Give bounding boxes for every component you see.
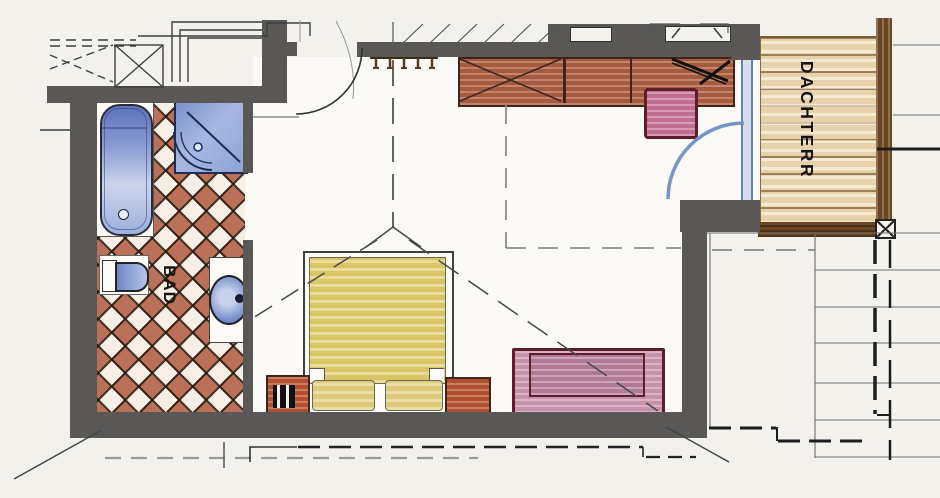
wall-bath-partition-upper xyxy=(243,103,253,173)
terrace-corner-post xyxy=(875,219,896,239)
floor-plan: BAD DACHTERR xyxy=(0,0,940,498)
exterior-dashed-boundary xyxy=(709,240,890,460)
nightstand-right xyxy=(445,377,491,417)
wall-niche-2 xyxy=(665,26,731,42)
wall-niche-1 xyxy=(570,27,612,42)
wardrobe-divider-1 xyxy=(563,57,566,103)
pillow-left xyxy=(312,380,375,411)
wall-entry-jut xyxy=(262,20,287,103)
wall-bath-partition-lower xyxy=(243,240,253,412)
terrace-railing-right xyxy=(876,18,892,237)
pillow-right xyxy=(385,380,443,411)
corner-shower xyxy=(174,101,248,174)
nightstand-phone-icon xyxy=(273,385,295,408)
terrace-label: DACHTERR xyxy=(795,33,817,207)
bathtub-water-line xyxy=(102,127,147,129)
bed-mattress xyxy=(309,257,446,384)
wall-bottom xyxy=(70,412,707,438)
toilet-bowl xyxy=(115,262,149,292)
entry-door-jamb xyxy=(285,42,297,56)
bathtub-drain xyxy=(118,209,129,220)
sofa-bench-cushion xyxy=(529,353,645,397)
bathroom-label: BAD xyxy=(157,253,179,317)
wall-right-lower xyxy=(682,232,707,412)
wardrobe-divider-2 xyxy=(630,57,632,103)
terrace-wood-deck xyxy=(760,36,879,224)
desk-chair xyxy=(644,88,698,139)
wall-left xyxy=(70,103,97,412)
terrace-door-leaf xyxy=(741,58,753,200)
wall-bath-top xyxy=(47,86,285,103)
wall-right-bay xyxy=(680,200,760,232)
wall-right-top-corner xyxy=(731,24,760,60)
wall-top xyxy=(357,42,760,57)
terrace-railing-bottom xyxy=(758,222,878,237)
